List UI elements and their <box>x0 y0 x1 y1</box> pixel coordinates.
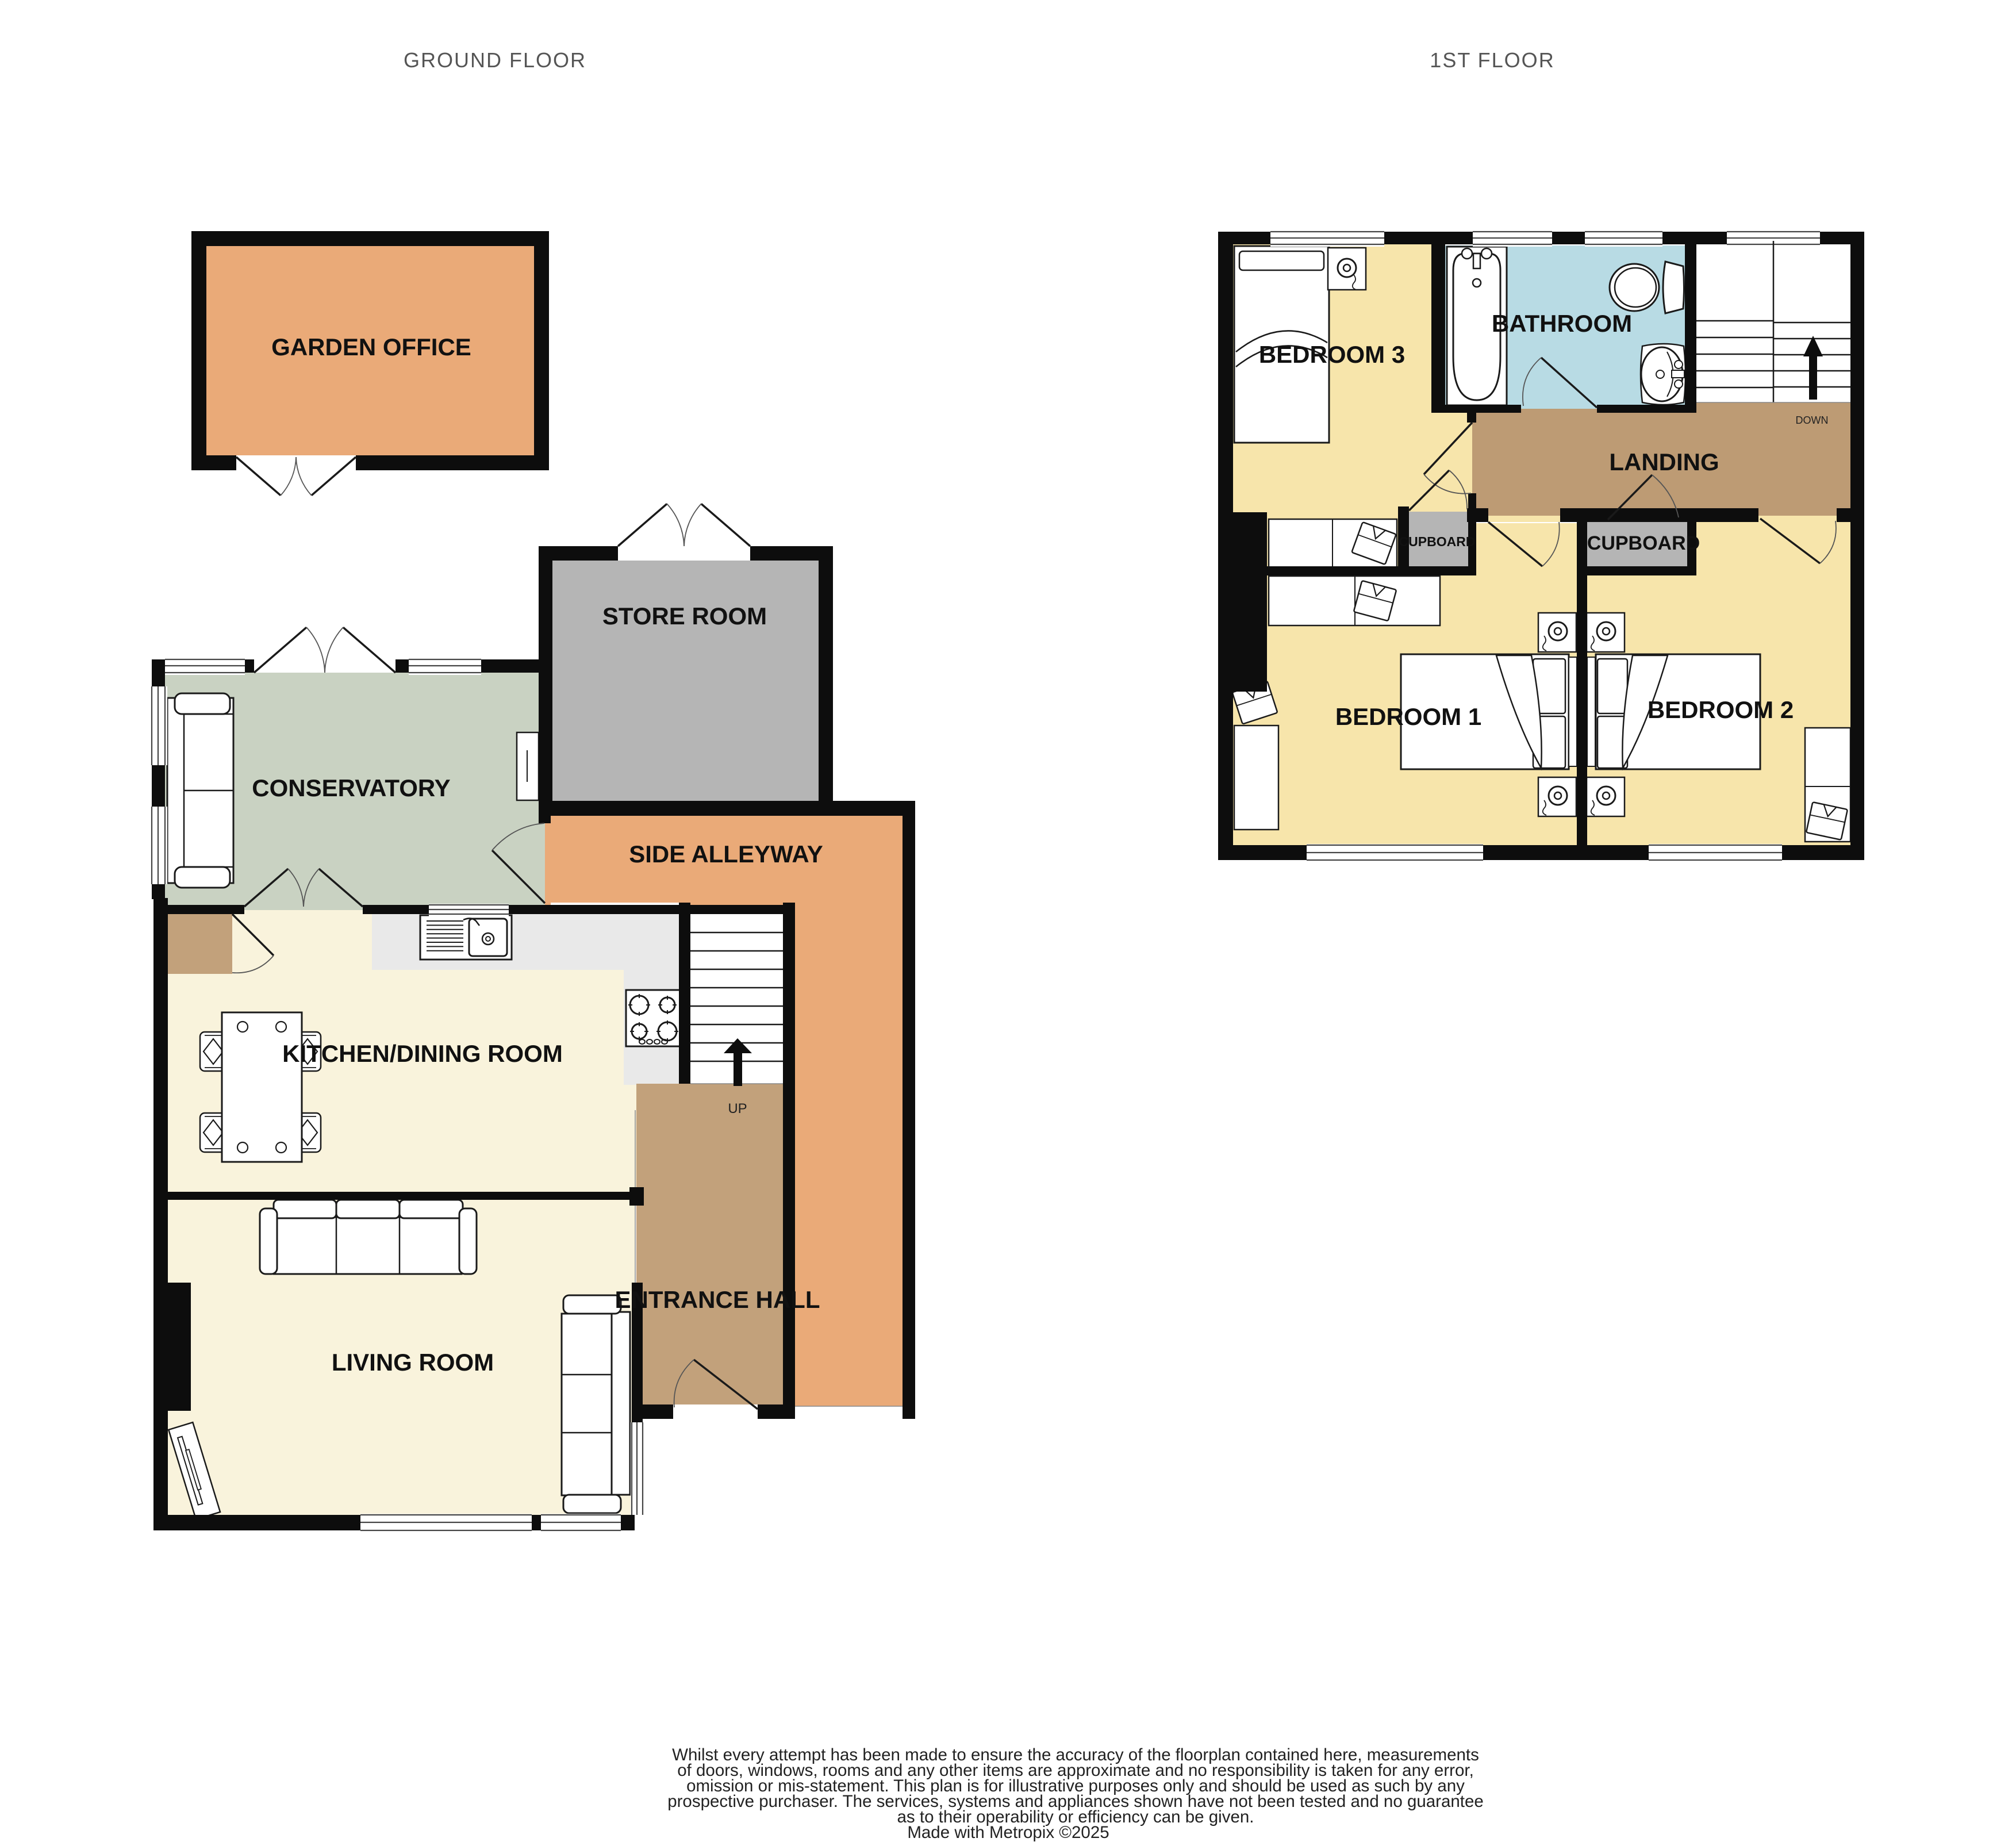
svg-text:KITCHEN/DINING ROOM: KITCHEN/DINING ROOM <box>282 1040 563 1067</box>
svg-text:1ST FLOOR: 1ST FLOOR <box>1430 48 1554 72</box>
svg-text:CUPBOARD: CUPBOARD <box>1587 532 1700 554</box>
svg-text:UP: UP <box>728 1101 747 1116</box>
svg-text:CONSERVATORY: CONSERVATORY <box>252 774 450 801</box>
svg-text:DOWN: DOWN <box>1796 415 1829 426</box>
svg-text:BEDROOM 3: BEDROOM 3 <box>1259 341 1405 368</box>
svg-text:LANDING: LANDING <box>1609 448 1719 475</box>
svg-text:GARDEN OFFICE: GARDEN OFFICE <box>271 333 471 360</box>
svg-text:BEDROOM 2: BEDROOM 2 <box>1648 696 1794 723</box>
svg-text:BATHROOM: BATHROOM <box>1492 310 1632 337</box>
svg-text:SIDE ALLEYWAY: SIDE ALLEYWAY <box>629 841 823 868</box>
svg-text:CUPBOARD: CUPBOARD <box>1399 534 1476 549</box>
svg-text:Made with Metropix ©2025: Made with Metropix ©2025 <box>907 1823 1109 1842</box>
svg-text:ENTRANCE HALL: ENTRANCE HALL <box>615 1286 820 1313</box>
svg-text:BEDROOM 1: BEDROOM 1 <box>1335 703 1481 730</box>
svg-text:GROUND FLOOR: GROUND FLOOR <box>404 48 586 72</box>
svg-text:LIVING ROOM: LIVING ROOM <box>332 1349 494 1376</box>
svg-text:STORE ROOM: STORE ROOM <box>602 603 767 630</box>
